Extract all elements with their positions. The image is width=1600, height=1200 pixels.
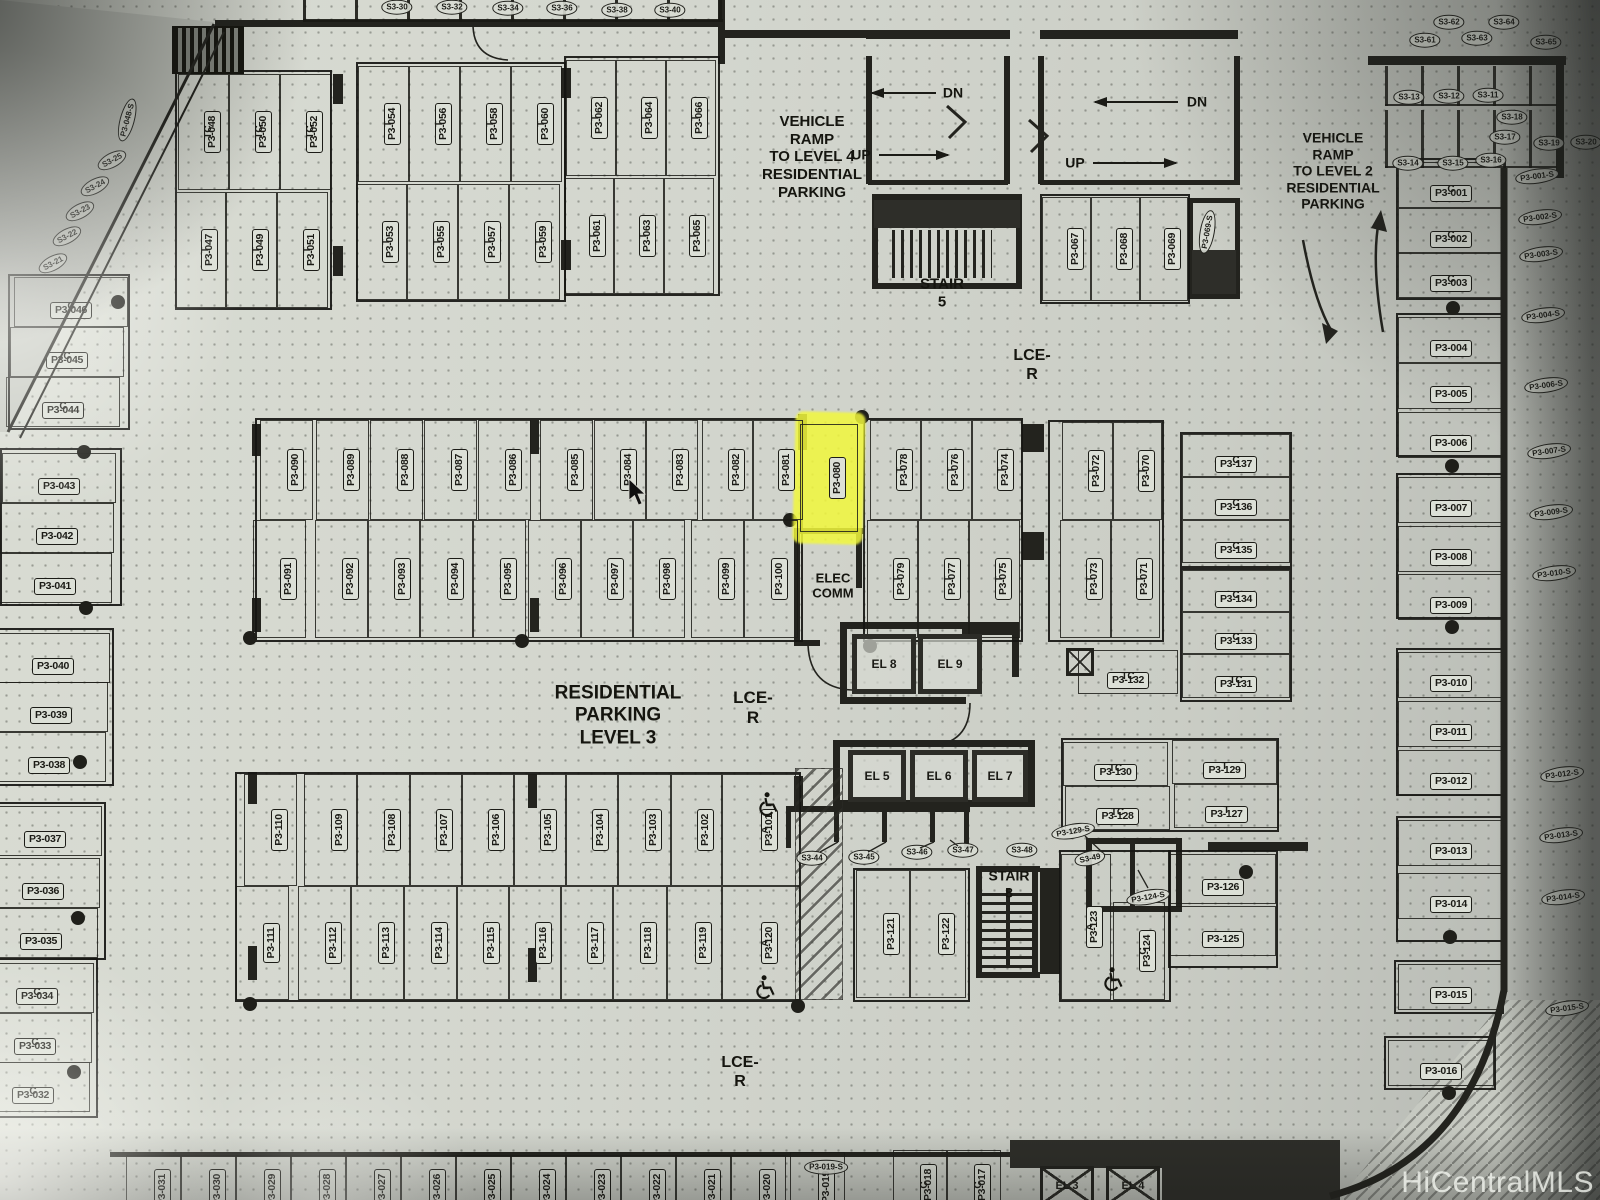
wheelchair-icon: [753, 791, 779, 817]
parking-stall-p3-042: P3-042: [0, 503, 114, 553]
stall-type-code: T: [1138, 468, 1148, 474]
parking-stall-p3-023: P3-023: [566, 1155, 621, 1200]
dn-arrow-1: [872, 92, 936, 95]
stall-number: P3-039: [30, 707, 72, 724]
parking-stall-p3-018: P3-018C: [893, 1150, 947, 1200]
parking-stall-p3-020: P3-020: [731, 1155, 786, 1200]
stall-type-code: A: [761, 939, 771, 946]
parking-stall-p3-022: P3-022: [621, 1155, 676, 1200]
parking-stall-p3-034: P3-034C: [0, 963, 94, 1013]
stall-type-code: T: [484, 239, 494, 245]
parking-stall-p3-129: P3-129T: [1172, 740, 1277, 784]
stall-number: P3-007: [1430, 500, 1472, 517]
parking-stall-p3-076: P3-076T: [921, 420, 972, 520]
stall-number: P3-006: [1430, 435, 1472, 452]
stall-number: P3-023: [594, 1169, 611, 1200]
parking-stall-p3-109: P3-109: [304, 774, 357, 886]
parking-stall-p3-137: P3-137C: [1182, 434, 1290, 477]
stall-number: P3-094: [447, 558, 464, 600]
parking-stall-p3-130: P3-130TC: [1063, 742, 1168, 786]
stall-number: P3-108: [384, 809, 401, 851]
parking-stall-p3-016: P3-016: [1388, 1040, 1494, 1086]
stall-number: P3-026: [429, 1169, 446, 1200]
stall-number: P3-029: [264, 1169, 281, 1200]
level-title: RESIDENTIAL PARKING LEVEL 3: [555, 682, 682, 749]
parking-stall-p3-126: P3-126: [1170, 854, 1276, 904]
stall-tag-oval-s3-14: S3-14: [1392, 156, 1423, 171]
parking-stall-p3-035: P3-035: [0, 908, 98, 958]
parking-stall-p3-057: P3-057T: [458, 184, 509, 300]
parking-stall-p3-106: P3-106: [462, 774, 514, 886]
parking-stall-p3-117: P3-117: [561, 886, 613, 1000]
up-label-2: UP: [1065, 155, 1084, 172]
stall-number: P3-080: [829, 457, 846, 499]
elevator-el-7: EL 7: [972, 750, 1028, 802]
stall-number: P3-097: [607, 558, 624, 600]
stall-type-code: C: [1232, 633, 1239, 643]
stall-type-code: C: [1447, 231, 1454, 241]
parking-stall-p3-013: P3-013: [1398, 820, 1504, 866]
parking-stall-p3-115: P3-115: [457, 886, 509, 1000]
floorplan-photo: P3-048TCP3-050TCP3-052TCP3-047TP3-049TP3…: [0, 0, 1600, 1200]
stall-number: P3-082: [728, 449, 745, 491]
stall-type-code: C: [59, 402, 66, 412]
parking-stall-p3-021: P3-021: [676, 1155, 731, 1200]
stall-tag-oval-s3-34: S3-34: [492, 1, 523, 16]
parking-stall-p3-110: P3-110: [244, 774, 297, 886]
parking-stall-p3-055: P3-055T: [407, 184, 458, 300]
stall-type-code: T: [691, 115, 701, 121]
stall-tag-oval-s3-63: S3-63: [1461, 31, 1492, 46]
stall-number: P3-015: [1430, 987, 1472, 1004]
stall-type-code: C: [1139, 947, 1149, 954]
parking-stall-p3-113: P3-113: [351, 886, 404, 1000]
stall-type-code: C: [1232, 456, 1239, 466]
stall-type-code: T: [201, 247, 211, 253]
lce-r-label-1: LCE-R: [1013, 347, 1050, 385]
parking-stall-p3-072: P3-072T: [1062, 422, 1113, 520]
stall-type-code: T: [689, 233, 699, 239]
stall-number: P3-107: [436, 809, 453, 851]
stall-number: P3-027: [374, 1169, 391, 1200]
stall-number: P3-111: [263, 923, 280, 964]
stall-number: P3-035: [20, 933, 62, 950]
parking-stall-p3-039: P3-039: [0, 682, 108, 732]
stall-number: P3-069: [1164, 228, 1181, 270]
parking-stall-p3-082: P3-082: [702, 420, 753, 520]
parking-stall-p3-004: P3-004: [1398, 317, 1504, 363]
parking-stall-p3-099: P3-099: [691, 520, 744, 638]
stall-type-code: T: [252, 247, 262, 253]
parking-stall-p3-107: P3-107: [410, 774, 462, 886]
stall-type-code: T: [1086, 576, 1096, 582]
stall-tag-oval-s3-20: S3-20: [1570, 135, 1600, 150]
stall-number: P3-005: [1430, 386, 1472, 403]
parking-stall-p3-077: P3-077T: [918, 520, 969, 638]
parking-stall-p3-091: P3-091: [253, 520, 306, 638]
elevator-el-3: EL 3: [1040, 1166, 1094, 1200]
parking-stall-p3-134: P3-134C: [1182, 570, 1290, 612]
parking-stall-p3-079: P3-079T: [867, 520, 918, 638]
stall-number: P3-090: [287, 449, 304, 491]
parking-stall-p3-044: P3-044C: [6, 377, 120, 427]
stall-number: P3-102: [697, 809, 714, 851]
stall-number: P3-091: [280, 558, 297, 600]
parking-stall-p3-118: P3-118: [613, 886, 667, 1000]
parking-stall-p3-078: P3-078T: [870, 420, 921, 520]
stall-number: P3-016: [1420, 1063, 1462, 1080]
parking-stall-p3-029: P3-029: [236, 1155, 291, 1200]
stall-tag-oval-s3-11: S3-11: [1473, 88, 1504, 103]
parking-stall-p3-131: P3-131TC: [1182, 654, 1290, 698]
stall-tag-oval-s3-32: S3-32: [436, 0, 467, 14]
parking-stall-p3-093: P3-093: [368, 520, 420, 638]
stall-number: P3-011: [1430, 724, 1471, 741]
stall-number: P3-040: [32, 658, 74, 675]
parking-stall-p3-006: P3-006: [1398, 412, 1504, 458]
parking-stall-p3-098: P3-098: [633, 520, 685, 638]
parking-stall-p3-108: P3-108: [357, 774, 410, 886]
stall-number: P3-021: [704, 1169, 721, 1200]
parking-stall-p3-086: P3-086: [478, 420, 531, 520]
stall-tag-oval-p3-019-s: P3-019-S: [804, 1160, 848, 1175]
stall-number: P3-093: [394, 558, 411, 600]
stall-number: P3-043: [38, 478, 80, 495]
stall-number: P3-119: [695, 922, 712, 963]
stall-number: P3-113: [378, 922, 395, 963]
ramp-note-level2: VEHICLE RAMP TO LEVEL 2 RESIDENTIAL PARK…: [1286, 130, 1379, 213]
parking-stall-p3-054: P3-054T: [358, 66, 409, 182]
stall-tag-oval-s3-13: S3-13: [1393, 90, 1424, 105]
stall-tag-oval-s3-48: S3-48: [1006, 843, 1037, 858]
stall-number: P3-081: [778, 449, 795, 491]
elevator-el-4: EL 4: [1106, 1166, 1160, 1200]
parking-stall-p3-005: P3-005: [1398, 363, 1504, 409]
parking-stall-p3-002: P3-002C: [1398, 208, 1504, 254]
parking-stall-p3-111: P3-111: [236, 886, 289, 1000]
parking-stall-p3-080: P3-080: [800, 424, 858, 532]
stall-number: P3-038: [28, 757, 70, 774]
elevator-label: EL 5: [864, 769, 889, 783]
parking-stall-p3-125: P3-125: [1170, 906, 1276, 956]
stall-number: P3-116: [535, 922, 552, 963]
parking-stall-p3-041: P3-041: [0, 553, 112, 603]
parking-stall-p3-050: P3-050TC: [229, 74, 280, 190]
elevator-label: EL 3: [1055, 1180, 1078, 1192]
wheelchair-icon: [750, 974, 776, 1000]
parking-stall-p3-136: P3-136C: [1182, 477, 1290, 520]
stall-number: P3-126: [1202, 879, 1244, 896]
stall-tag-oval-s3-36: S3-36: [546, 1, 577, 16]
stall-type-code: C: [31, 1038, 38, 1048]
parking-stall-p3-063: P3-063T: [614, 178, 664, 294]
stall-number: P3-117: [587, 922, 604, 963]
stall-type-code: TC: [1111, 808, 1124, 818]
stall-number: P3-083: [672, 449, 689, 491]
parking-stall-p3-025: P3-025: [456, 1155, 511, 1200]
dn-label-2: DN: [1187, 94, 1207, 111]
parking-stall-p3-085: P3-085: [540, 420, 593, 520]
wheelchair-icon: [1098, 966, 1124, 992]
parking-stall-p3-051: P3-051T: [277, 192, 328, 308]
parking-stall-p3-052: P3-052TC: [280, 74, 331, 190]
parking-stall-p3-015: P3-015: [1398, 964, 1504, 1010]
parking-stall-p3-119: P3-119: [667, 886, 722, 1000]
stall-number: P3-118: [640, 922, 657, 963]
elevator-label: EL 4: [1121, 1180, 1144, 1192]
parking-stall-p3-104: P3-104: [566, 774, 618, 886]
parking-stall-p3-046: P3-046C: [14, 277, 128, 327]
stall-type-code: T: [433, 239, 443, 245]
stall-tag-oval-s3-17: S3-17: [1489, 130, 1520, 145]
stall-number: P3-030: [209, 1169, 226, 1200]
parking-stall-p3-047: P3-047T: [175, 192, 226, 308]
stall-number: P3-099: [718, 558, 735, 600]
parking-stall-p3-061: P3-061T: [564, 178, 614, 294]
stall-tag-oval-s3-44: S3-44: [796, 851, 827, 866]
parking-stall-p3-036: P3-036: [0, 858, 100, 908]
stall-type-code: TC: [306, 125, 316, 138]
stall-type-code: T: [384, 121, 394, 127]
stall-tag-oval-s3-61: S3-61: [1409, 33, 1440, 48]
parking-stall-p3-026: P3-026: [401, 1155, 456, 1200]
stall-type-code: T: [1223, 806, 1229, 816]
parking-stall-p3-102: P3-102: [671, 774, 722, 886]
watermark: HiCentralMLS: [1401, 1166, 1594, 1200]
stall-tag-oval-s3-62: S3-62: [1433, 15, 1464, 30]
parking-stall-p3-007: P3-007: [1398, 477, 1504, 523]
stall-type-code: T: [896, 467, 906, 473]
parking-stall-p3-096: P3-096: [528, 520, 581, 638]
parking-stall-p3-088: P3-088: [370, 420, 423, 520]
parking-stall-p3-070: P3-070T: [1113, 422, 1162, 520]
parking-stall-p3-116: P3-116: [509, 886, 561, 1000]
stall-type-code: T: [589, 233, 599, 239]
stall-number: P3-041: [34, 578, 76, 595]
parking-stall-p3-049: P3-049T: [226, 192, 277, 308]
stall-type-code: C: [67, 302, 74, 312]
parking-stall-p3-003: P3-003C: [1398, 252, 1504, 298]
stall-number: P3-036: [22, 883, 64, 900]
stall-tag-oval-s3-18: S3-18: [1496, 110, 1527, 125]
stall-number: P3-095: [500, 558, 517, 600]
parking-stall-p3-027: P3-027: [346, 1155, 401, 1200]
stall-number: P3-110: [271, 809, 288, 850]
up-arrow-2: [1093, 162, 1176, 165]
stall-number: P3-020: [759, 1169, 776, 1200]
stall-type-code: C: [1232, 591, 1239, 601]
elevator-label: EL 7: [987, 769, 1012, 783]
stall-tag-oval-s3-30: S3-30: [381, 0, 412, 14]
parking-stall-p3-024: P3-024: [511, 1155, 566, 1200]
stall-type-code: T: [641, 115, 651, 121]
parking-stall-p3-103: P3-103: [618, 774, 671, 886]
stall-type-code: T: [893, 576, 903, 582]
stall-number: P3-085: [567, 449, 584, 491]
stall-tag-oval-s3-45: S3-45: [848, 850, 879, 865]
stall-type-code: C: [920, 1181, 930, 1188]
parking-stall-p3-048: P3-048TC: [178, 74, 229, 190]
stall-number: P3-104: [592, 809, 609, 851]
parking-stall-p3-087: P3-087: [424, 420, 477, 520]
elevator-el-8: EL 8: [852, 634, 916, 694]
parking-stall-p3-089: P3-089: [316, 420, 369, 520]
parking-stall-p3-069: P3-069: [1140, 197, 1188, 301]
lce-r-label-3: LCE-R: [721, 1054, 758, 1092]
parking-stall-p3-090: P3-090: [260, 420, 313, 520]
stall-number: P3-092: [342, 558, 359, 600]
stall-number: P3-112: [325, 922, 342, 963]
stall-type-code: TC: [1109, 764, 1122, 774]
elevator-el-5: EL 5: [848, 750, 906, 802]
parking-stall-p3-121: P3-121: [856, 870, 910, 998]
stall-number: P3-028: [319, 1169, 336, 1200]
parking-stall-p3-122: P3-122: [910, 870, 966, 998]
parking-stall-p3-017: P3-017C: [947, 1150, 1001, 1200]
stall-type-code: TC: [204, 125, 214, 138]
stall-number: P3-087: [451, 449, 468, 491]
stall-number: P3-012: [1430, 773, 1472, 790]
up-label-1: UP: [851, 147, 870, 164]
stall-number: P3-008: [1430, 549, 1472, 566]
stall-type-code: T: [535, 239, 545, 245]
stall-number: P3-105: [540, 809, 557, 851]
parking-stall-p3-060: P3-060T: [511, 66, 562, 182]
dn-arrow-2: [1095, 101, 1178, 104]
up-arrow-1: [879, 154, 948, 157]
parking-stall-p3-040: P3-040: [0, 633, 110, 683]
parking-stall-p3-112: P3-112: [298, 886, 351, 1000]
lce-r-label-2: LCE-R: [733, 688, 773, 728]
stall-type-code: T: [486, 121, 496, 127]
stall-type-code: T: [382, 239, 392, 245]
parking-stall-p3-064: P3-064T: [616, 60, 666, 176]
parking-stall-p3-081: P3-081: [753, 420, 803, 520]
parking-stall-p3-053: P3-053T: [356, 184, 407, 300]
parking-stall-p3-056: P3-056T: [409, 66, 460, 182]
parking-stall-p3-009: P3-009: [1398, 574, 1504, 620]
parking-stall-p3-133: P3-133C: [1182, 612, 1290, 654]
stall-type-code: T: [1136, 576, 1146, 582]
stall-type-code: T: [997, 467, 1007, 473]
elevator-label: EL 9: [937, 657, 962, 671]
parking-stall-p3-033: P3-033C: [0, 1013, 92, 1063]
stall-number: P3-067: [1067, 228, 1084, 270]
parking-stall-p3-058: P3-058T: [460, 66, 511, 182]
stall-type-code: T: [1088, 468, 1098, 474]
stair5-label: STAIR 5: [920, 275, 964, 310]
parking-stall-p3-135: P3-135C: [1182, 520, 1290, 563]
stall-number: P3-106: [488, 809, 505, 851]
parking-stall-p3-068: P3-068: [1091, 197, 1140, 301]
stall-number: P3-122: [938, 913, 955, 955]
parking-stall-p3-097: P3-097: [581, 520, 633, 638]
parking-stall-p3-127: P3-127T: [1174, 784, 1279, 828]
stall-number: P3-009: [1430, 597, 1472, 614]
parking-stall-p3-074: P3-074T: [972, 420, 1022, 520]
parking-stall-p3-092: P3-092: [315, 520, 368, 638]
stall-type-code: TC: [1229, 676, 1242, 686]
stall-type-code: T: [944, 576, 954, 582]
stall-number: P3-096: [555, 558, 572, 600]
stall-number: P3-068: [1116, 228, 1133, 270]
parking-stall-p3-030: P3-030: [181, 1155, 236, 1200]
stall-type-code: C: [1232, 499, 1239, 509]
elevator-el-9: EL 9: [918, 634, 982, 694]
parking-stall-p3-010: P3-010: [1398, 652, 1504, 698]
stall-type-code: T: [1221, 762, 1227, 772]
stall-tag-oval-s3-15: S3-15: [1437, 156, 1468, 171]
stall-tag-oval-s3-16: S3-16: [1475, 153, 1506, 168]
elevator-el-6: EL 6: [910, 750, 968, 802]
parking-stall-p3-083: P3-083: [646, 420, 698, 520]
parking-stall-p3-031: P3-031: [126, 1155, 181, 1200]
stall-tag-oval-s3-38: S3-38: [601, 3, 632, 18]
parking-stall-p3-095: P3-095: [473, 520, 526, 638]
parking-stall-p3-012: P3-012: [1398, 750, 1504, 796]
stall-number: P3-037: [24, 831, 66, 848]
stair8-label: STAIR 8: [989, 867, 1030, 900]
stall-type-code: T: [435, 121, 445, 127]
parking-stall-p3-059: P3-059T: [509, 184, 560, 300]
stall-tag-oval-s3-19: S3-19: [1533, 136, 1564, 151]
parking-stall-p3-008: P3-008: [1398, 526, 1504, 572]
mouse-cursor-icon: [628, 478, 650, 508]
stall-tag-oval-s3-64: S3-64: [1488, 15, 1519, 30]
stall-type-code: T: [947, 467, 957, 473]
stall-type-code: C: [1447, 185, 1454, 195]
parking-stall-p3-105: P3-105: [514, 774, 566, 886]
parking-stall-p3-094: P3-094: [420, 520, 473, 638]
shaft-box: [1066, 648, 1094, 676]
stall-type-code: T: [639, 233, 649, 239]
stall-tag-oval-s3-12: S3-12: [1433, 89, 1464, 104]
parking-stall-p3-114: P3-114: [404, 886, 457, 1000]
parking-stall-p3-028: P3-028: [291, 1155, 346, 1200]
stall-number: P3-013: [1430, 843, 1472, 860]
stall-number: P3-114: [431, 922, 448, 963]
parking-stall-p3-062: P3-062T: [566, 60, 616, 176]
stall-number: P3-089: [343, 449, 360, 491]
parking-stall-p3-066: P3-066T: [666, 60, 716, 176]
parking-stall-p3-038: P3-038: [0, 732, 106, 782]
stall-type-code: T: [995, 576, 1005, 582]
stall-number: P3-100: [771, 558, 788, 600]
stall-tag-oval-s3-65: S3-65: [1530, 35, 1561, 50]
parking-stall-p3-032: P3-032C: [0, 1062, 90, 1112]
ramp-note-level4: VEHICLE RAMP TO LEVEL 4 RESIDENTIAL PARK…: [762, 113, 862, 201]
parking-stall-p3-075: P3-075T: [969, 520, 1020, 638]
dn-label-1: DN: [943, 85, 963, 102]
elec-comm-label: ELEC COMM: [812, 571, 853, 602]
parking-stall-p3-073: P3-073T: [1060, 520, 1111, 638]
stall-tag-oval-s3-46: S3-46: [901, 845, 932, 860]
stall-type-code: C: [29, 1087, 36, 1097]
parking-stall-p3-011: P3-011: [1398, 701, 1504, 747]
parking-stall-p3-071: P3-071T: [1111, 520, 1160, 638]
stall-type-code: C: [1447, 275, 1454, 285]
stall-tag-oval-s3-40: S3-40: [654, 3, 685, 18]
stall-number: P3-115: [483, 922, 500, 963]
stall-number: P3-022: [649, 1169, 666, 1200]
stall-number: P3-088: [397, 449, 414, 491]
stall-type-code: T: [537, 121, 547, 127]
stall-number: P3-103: [645, 809, 662, 851]
stall-number: P3-031: [154, 1169, 171, 1200]
stall-number: P3-024: [539, 1169, 556, 1200]
stall-type-code: C: [33, 988, 40, 998]
parking-stall-p3-037: P3-037: [0, 806, 102, 856]
